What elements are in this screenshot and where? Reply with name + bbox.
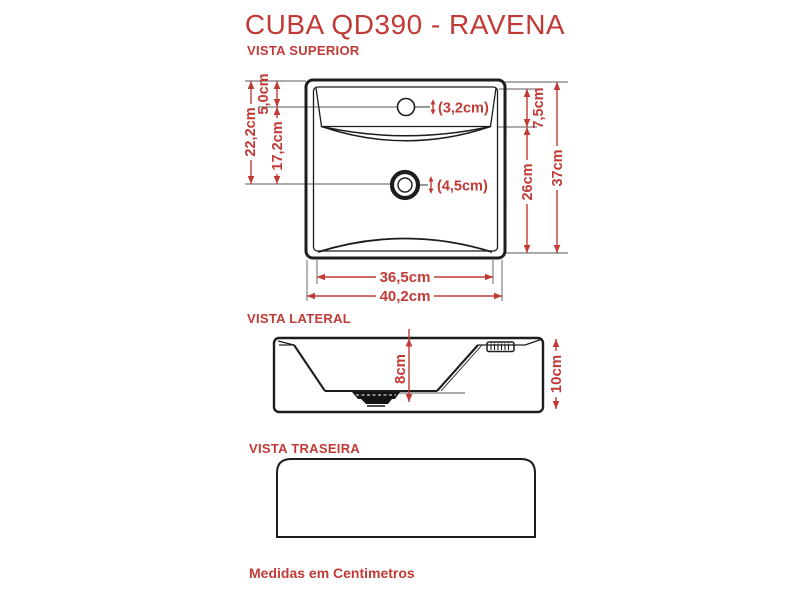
sink-back-outline xyxy=(277,459,535,537)
drain-fitting-side xyxy=(352,392,400,406)
svg-text:17,2cm: 17,2cm xyxy=(270,121,286,170)
basin-front-curve-lower xyxy=(322,127,491,141)
dim-right-upper: 7,5cm xyxy=(531,87,547,128)
dim-faucet-hole: (3,2cm) xyxy=(438,101,489,117)
dim-basin-depth: 8cm xyxy=(392,354,409,384)
sink-dimension-diagram: CUBA QD390 - RAVENA VISTA SUPERIOR VISTA… xyxy=(0,0,810,590)
top-view-drawing: 22,2cm 5,0cm 17,2cm 7,5cm 26cm 37cm (3,2… xyxy=(242,73,569,305)
back-view-drawing xyxy=(277,459,535,537)
svg-text:8cm: 8cm xyxy=(392,354,409,384)
svg-text:7,5cm: 7,5cm xyxy=(531,87,547,128)
faucet-hole xyxy=(398,99,415,116)
svg-text:40,2cm: 40,2cm xyxy=(380,288,431,305)
dim-right-total: 37cm xyxy=(549,146,567,190)
svg-text:36,5cm: 36,5cm xyxy=(380,269,431,286)
dim-bottom-outer: 40,2cm xyxy=(376,288,434,305)
top-view-dimension-lines xyxy=(248,81,561,299)
basin-bottom-curve xyxy=(318,239,492,253)
dim-total-height: 10cm xyxy=(548,351,566,397)
dim-right-lower: 26cm xyxy=(519,160,537,204)
faucet-hole-side xyxy=(487,342,514,352)
svg-text:10cm: 10cm xyxy=(548,355,565,393)
svg-text:5,0cm: 5,0cm xyxy=(256,73,272,114)
dim-left-lower: 17,2cm xyxy=(269,118,287,174)
svg-text:37cm: 37cm xyxy=(550,149,566,186)
drain-hole-ring xyxy=(392,172,418,198)
svg-text:(4,5cm): (4,5cm) xyxy=(437,179,488,195)
dim-drain-hole: (4,5cm) xyxy=(437,179,488,195)
dim-left-upper: 5,0cm xyxy=(256,73,272,114)
side-view-drawing: 8cm 10cm xyxy=(274,329,565,412)
technical-drawing: 22,2cm 5,0cm 17,2cm 7,5cm 26cm 37cm (3,2… xyxy=(0,0,810,590)
svg-text:(3,2cm): (3,2cm) xyxy=(438,101,489,117)
drain-hole-inner xyxy=(398,178,412,192)
dim-bottom-inner: 36,5cm xyxy=(376,269,434,286)
svg-text:26cm: 26cm xyxy=(520,163,536,200)
